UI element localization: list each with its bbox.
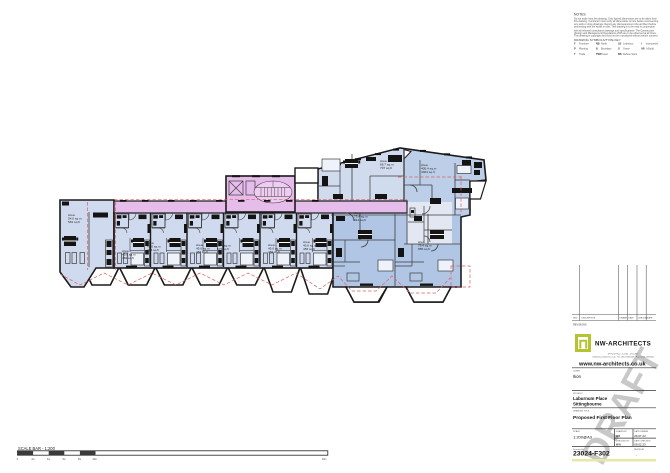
svg-text:484 sq.ft: 484 sq.ft: [147, 248, 159, 252]
svg-text:A.Build: A.Build: [646, 48, 654, 51]
svg-text:707 sq.ft: 707 sq.ft: [380, 166, 392, 170]
svg-text:REV: REV: [573, 318, 578, 320]
svg-text:SCALE: SCALE: [573, 430, 580, 433]
svg-text:CLIENT: CLIENT: [573, 370, 581, 372]
svg-text:North: North: [601, 43, 608, 46]
svg-text:812 sq.ft: 812 sq.ft: [354, 218, 366, 222]
svg-text:1:200@A3: 1:200@A3: [573, 435, 593, 440]
svg-text:G: G: [618, 48, 620, 51]
svg-text:Furniture: Furniture: [579, 43, 589, 46]
svg-text:29.07.23: 29.07.23: [634, 434, 646, 438]
svg-text:DRAWING TITLE: DRAWING TITLE: [573, 410, 590, 413]
svg-text:2m: 2m: [32, 459, 35, 461]
svg-text:www.nw-architects.co.uk: www.nw-architects.co.uk: [578, 362, 647, 368]
svg-text:info@nw-architects.co.uk Tel: info@nw-architects.co.uk Tel: 0113 24555…: [592, 356, 654, 359]
svg-text:NB: NB: [596, 43, 600, 46]
svg-text:4364 sq.ft: 4364 sq.ft: [421, 170, 435, 174]
svg-text:AB: AB: [641, 48, 645, 51]
svg-text:DRAWN: DRAWN: [620, 317, 628, 320]
svg-text:DATE: DATE: [647, 317, 653, 320]
svg-text:484 sq.ft: 484 sq.ft: [268, 250, 280, 254]
svg-text:PROJECT: PROJECT: [573, 393, 583, 395]
svg-text:BB: BB: [618, 53, 622, 56]
svg-text:Letterbox: Letterbox: [623, 43, 634, 46]
svg-text:Proposed First Floor Plan: Proposed First Floor Plan: [573, 415, 632, 421]
svg-text:456 sq.ft: 456 sq.ft: [303, 247, 315, 251]
svg-text:proceeding with the works on s: proceeding with the works on site. This …: [574, 26, 655, 29]
svg-text:DESCRIPTION: DESCRIPTION: [582, 318, 596, 320]
svg-text:484 sq.ft: 484 sq.ft: [196, 250, 208, 254]
svg-text:SCALE BAR - 1:200: SCALE BAR - 1:200: [18, 446, 56, 451]
svg-text:Laburnum Place: Laburnum Place: [573, 396, 608, 401]
svg-text:575 sq.ft: 575 sq.ft: [217, 247, 229, 251]
svg-text:484 sq.ft: 484 sq.ft: [122, 256, 134, 260]
svg-text:REVISION: REVISION: [634, 449, 644, 451]
svg-text:Ikon: Ikon: [573, 374, 582, 379]
svg-text:Refuse Store: Refuse Store: [623, 53, 638, 56]
svg-text:Sittingbourne: Sittingbourne: [573, 401, 602, 406]
svg-text:MW: MW: [616, 443, 621, 447]
svg-text:09.02.23: 09.02.23: [634, 443, 646, 447]
svg-text:B: B: [596, 48, 598, 51]
svg-text:LB: LB: [618, 43, 621, 46]
svg-text:Intercom/el: Intercom/el: [646, 43, 659, 46]
svg-text:Planting: Planting: [579, 48, 588, 51]
svg-text:Trade: Trade: [579, 53, 586, 56]
svg-text:37 Park Place - Leeds - LS1 2R: 37 Park Place - Leeds - LS1 2RY: [608, 353, 639, 356]
svg-text:DATE: DATE: [629, 317, 635, 320]
svg-text:DATE DRAWN: DATE DRAWN: [634, 430, 648, 433]
svg-text:-: -: [636, 453, 637, 457]
svg-text:NW-ARCHITECTS: NW-ARCHITECTS: [595, 341, 651, 348]
svg-text:10m: 10m: [93, 459, 98, 461]
svg-text:4m: 4m: [47, 459, 50, 461]
svg-text:Boundary: Boundary: [601, 48, 612, 51]
svg-text:DRAWN BY: DRAWN BY: [616, 430, 628, 433]
svg-text:855 sq.ft: 855 sq.ft: [418, 247, 430, 251]
svg-text:DRAWING SYMBOLS/TYPE KEY: DRAWING SYMBOLS/TYPE KEY: [574, 38, 621, 42]
svg-text:Green: Green: [623, 48, 630, 51]
svg-text:NOTES: NOTES: [574, 13, 586, 17]
svg-text:40m: 40m: [322, 459, 327, 461]
svg-text:8m: 8m: [78, 459, 81, 461]
svg-text:MB: MB: [616, 434, 620, 438]
svg-text:581 sq.ft: 581 sq.ft: [68, 220, 80, 224]
svg-text:Travel: Travel: [601, 53, 608, 56]
svg-text:6m: 6m: [63, 459, 66, 461]
svg-text:REVISIONS: REVISIONS: [573, 324, 587, 327]
svg-text:23024-F302: 23024-F302: [573, 451, 610, 458]
